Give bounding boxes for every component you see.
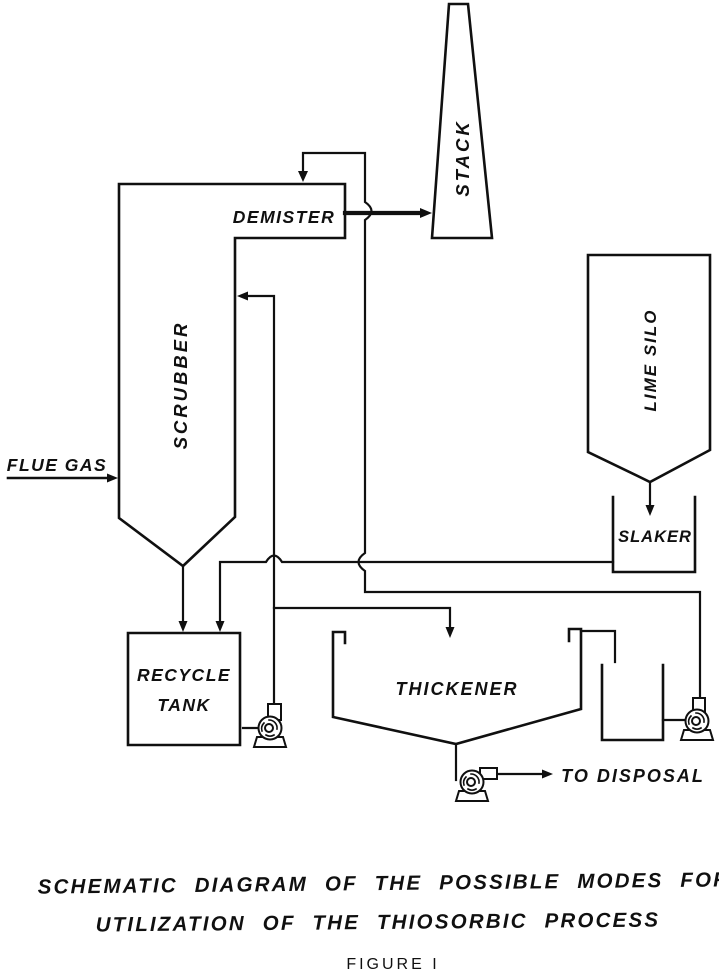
caption-line-1: SCHEMATIC DIAGRAM OF THE POSSIBLE MODES … (38, 868, 719, 898)
thickener-feed-arrow (446, 627, 455, 638)
holding-tank-vessel (602, 665, 663, 740)
thickener-feed-pipe (274, 608, 450, 627)
holding-tank-pump (681, 710, 713, 741)
scrubber-spray-arrow (237, 292, 248, 301)
recycle-pump (254, 717, 286, 748)
stack-label: STACK (452, 119, 473, 196)
slaker-line-arrow (216, 621, 225, 632)
flue-gas-label: FLUE GAS (7, 455, 107, 475)
to-disposal-label: TO DISPOSAL (561, 766, 705, 786)
scrubber-vessel (119, 184, 345, 566)
process-flow-diagram: FLUE GAS DEMISTER STACK SCRUBBER LIME SI… (0, 0, 719, 976)
thickener-overflow-pipe (581, 631, 615, 662)
demister-label: DEMISTER (233, 207, 335, 227)
recycle-tank-label-line2: TANK (157, 695, 210, 715)
recycle-tank-vessel (128, 633, 240, 745)
slaker-to-recycle-pipe (220, 556, 613, 622)
lime-silo-label: LIME SILO (641, 309, 660, 412)
thickener-label: THICKENER (395, 679, 518, 699)
scrubber-spray-pipe (248, 296, 274, 704)
figure-number-label: FIGURE I (346, 956, 439, 973)
silo-outlet-arrow (646, 505, 655, 516)
demister-spray-arrow (298, 171, 308, 182)
flue-gas-arrow (107, 474, 118, 483)
caption-line-2: UTILIZATION OF THE THIOSORBIC PROCESS (96, 909, 661, 937)
stack-duct-arrow (420, 208, 432, 218)
scrubber-underflow-arrow (179, 621, 188, 632)
scrubber-label: SCRUBBER (170, 321, 191, 450)
slaker-label: SLAKER (618, 528, 692, 546)
scanned-schematic-page: FLUE GAS DEMISTER STACK SCRUBBER LIME SI… (0, 0, 719, 976)
disposal-arrow (542, 770, 553, 779)
recycle-tank-label-line1: RECYCLE (137, 665, 231, 685)
